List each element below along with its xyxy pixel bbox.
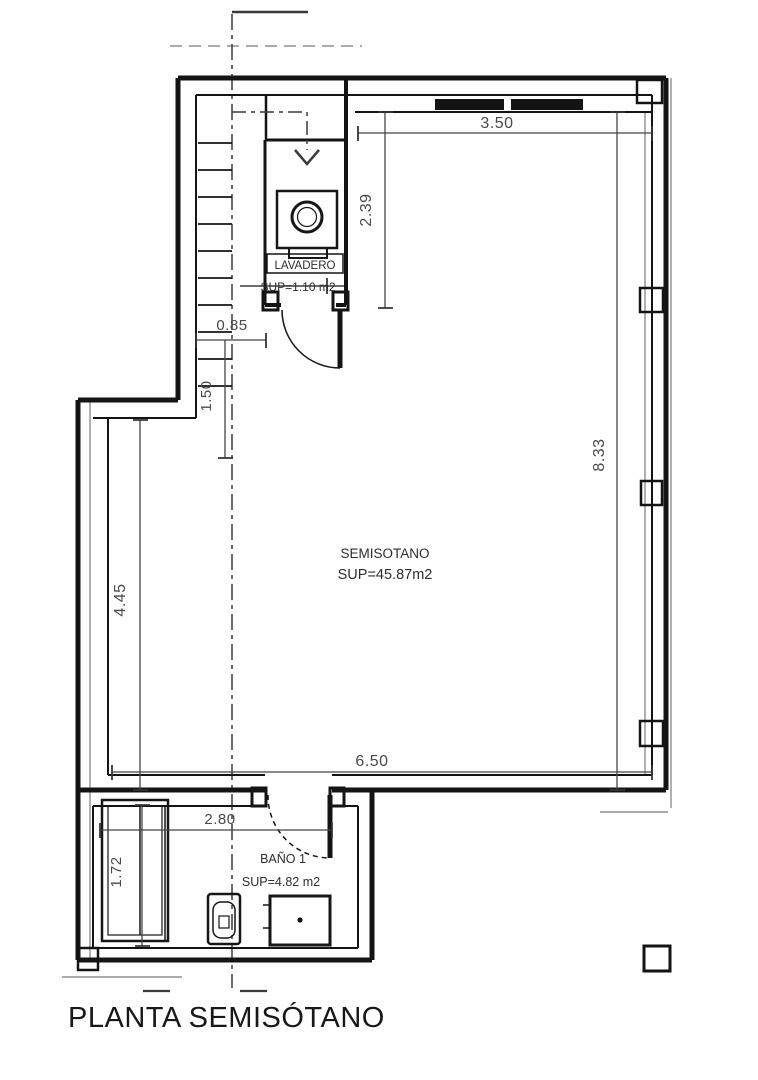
- door1-swing-arc: [282, 310, 340, 368]
- dim-top-label: 3.50: [480, 115, 513, 132]
- toilet-icon: [208, 894, 240, 944]
- top-window: [435, 99, 583, 110]
- detached-pillar: [644, 946, 670, 971]
- lavadero-name: LAVADERO: [275, 260, 336, 272]
- dim-lavadero-label: 2.39: [358, 193, 375, 226]
- floor-plan-page: 3.50 2.39 0.85 1.50 8.33 4.45 6.50 2.80: [0, 0, 758, 1080]
- doors: [252, 310, 344, 858]
- semisotano-name: SEMISOTANO: [340, 546, 429, 561]
- semisotano-area: SUP=45.87m2: [338, 567, 433, 583]
- pillar-1: [637, 80, 662, 103]
- shower-tray-icon: [263, 896, 330, 945]
- stair-direction-arrow-icon: [295, 150, 319, 164]
- secondary-lines: [62, 46, 671, 977]
- dim-bottom-label: 6.50: [355, 753, 388, 770]
- dim-bano-height-label: 1.72: [108, 856, 125, 887]
- dim-stairwidth-label: 0.85: [216, 317, 247, 334]
- dim-bano-width-label: 2.80: [204, 811, 235, 828]
- washing-machine-icon: [277, 191, 337, 258]
- floor-plan-canvas: 3.50 2.39 0.85 1.50 8.33 4.45 6.50 2.80: [0, 0, 758, 1080]
- dim-left-label: 4.45: [112, 583, 129, 616]
- room-labels: SEMISOTANO SUP=45.87m2 LAVADERO SUP=1.10…: [242, 254, 432, 889]
- dim-right-label: 8.33: [591, 438, 608, 471]
- bano-area: SUP=4.82 m2: [242, 875, 320, 889]
- lavadero-area: SUP=1.10 m2: [260, 280, 335, 294]
- stair-treads: [198, 143, 232, 386]
- window-mullion-gap: [504, 99, 511, 110]
- dim-stairrun-label: 1.50: [198, 380, 215, 411]
- lavadero-walls: [240, 80, 348, 310]
- bano-name: BAÑO 1: [260, 852, 306, 866]
- dimension-lines: 3.50 2.39 0.85 1.50 8.33 4.45 6.50 2.80: [100, 112, 652, 946]
- plan-title: PLANTA SEMISÓTANO: [68, 1001, 385, 1034]
- stair-walk-line: [232, 112, 307, 150]
- door2-swing-arc: [268, 795, 330, 858]
